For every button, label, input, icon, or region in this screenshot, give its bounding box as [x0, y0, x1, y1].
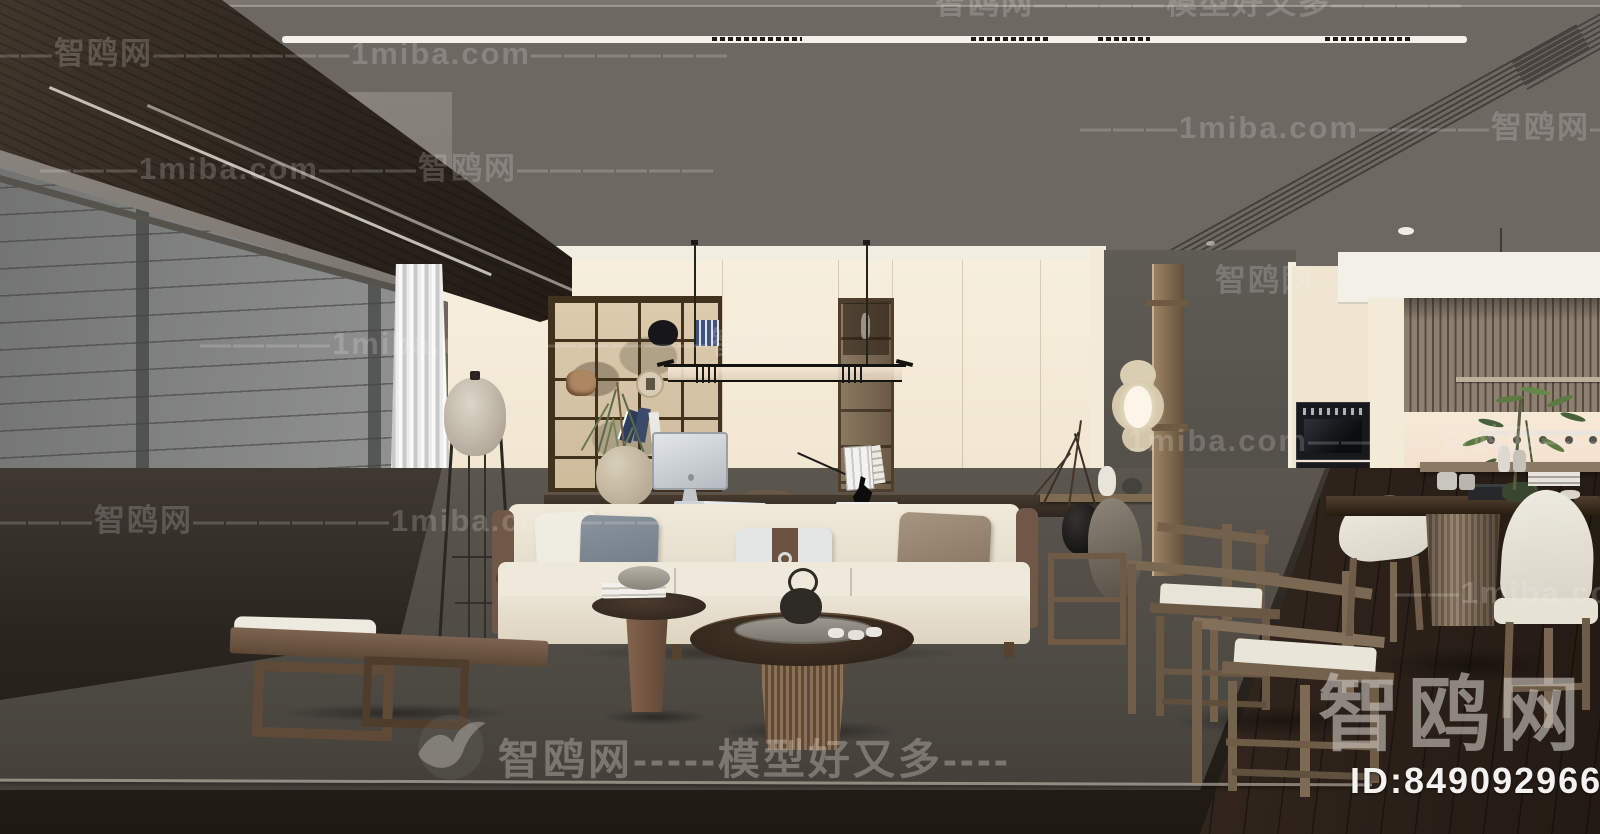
sofa-leg — [1004, 642, 1014, 658]
bookend-books — [843, 445, 874, 491]
quatrefoil-wall-lamp — [1112, 360, 1166, 454]
side-table-frame — [1048, 553, 1126, 645]
counter-jar — [1437, 472, 1457, 490]
rail-hook — [1589, 436, 1597, 444]
floor-lamp-shade — [444, 378, 506, 456]
counter-shelf — [1420, 462, 1600, 472]
light-strip-dark-segment — [1325, 37, 1410, 41]
counter-bottle — [1513, 450, 1526, 472]
bench-leg-frame — [362, 656, 469, 730]
dark-pebble-decor — [1122, 478, 1142, 494]
wall-rail — [1478, 431, 1600, 435]
plaque-mark — [646, 378, 655, 390]
watermark-row: ———1miba.com————智鸥网— — [1080, 102, 1600, 147]
pendant-ribs — [842, 366, 862, 383]
ceramic-vase — [596, 446, 654, 506]
chair-side-post — [1128, 564, 1136, 714]
tea-cup — [866, 627, 882, 637]
microwave-oven — [1296, 402, 1370, 460]
pole-crossbar — [1146, 300, 1188, 306]
table-column — [622, 612, 672, 712]
site-logo-watermark: 智鸥网 — [1318, 648, 1588, 767]
chair-top-rail — [1157, 522, 1269, 545]
chair-side-post — [1192, 621, 1202, 783]
ceiling-vent-band-corner — [1512, 0, 1600, 92]
kitchen-white-ceiling-band — [1338, 252, 1600, 304]
counter-bottle — [1498, 446, 1510, 472]
ceiling-edge-line — [0, 5, 1600, 7]
dining-chair-leg — [1390, 562, 1397, 642]
dining-chair-leg — [1411, 556, 1423, 630]
light-strip-dark-segment — [1098, 37, 1150, 41]
rail-hook — [1565, 436, 1573, 444]
dining-chair-leg — [1346, 558, 1357, 636]
floor-lamp-finial — [470, 371, 480, 380]
coral-ornament — [566, 370, 596, 396]
pendant-ribs — [696, 366, 716, 383]
pendant-cord — [694, 243, 696, 365]
decor-bowl — [618, 566, 670, 590]
pendant-cord — [866, 243, 868, 365]
model-id-text: ID:849092966 — [1350, 760, 1600, 802]
apple-logo — [688, 474, 694, 481]
side-table-stretcher — [1054, 597, 1120, 602]
teapot — [780, 588, 822, 624]
tea-cup — [828, 628, 844, 638]
cord-canopy — [691, 240, 698, 245]
counter-jar — [1459, 474, 1475, 490]
imac-computer — [652, 432, 730, 510]
black-vase — [648, 320, 678, 346]
imac-screen — [652, 432, 728, 490]
interior-render-scene: 智鸥网————模型好又多———————智鸥网——————1miba.com———… — [0, 0, 1600, 834]
bench-group — [228, 612, 558, 752]
light-strip-dark-segment — [971, 37, 1051, 41]
counter-books — [1528, 472, 1580, 486]
ceiling-spotlight — [1206, 241, 1215, 246]
white-vase-small — [1098, 466, 1116, 496]
coffee-table-large — [676, 600, 946, 760]
oven-window — [1304, 419, 1362, 453]
bamboo-rail — [1456, 377, 1600, 382]
table-fluted-base — [756, 658, 850, 750]
cord-canopy — [863, 240, 870, 245]
linear-pendant-lamp — [660, 360, 910, 388]
ceiling-spotlight — [1398, 227, 1414, 235]
ceiling-light-strip — [282, 36, 1467, 43]
lamp-glow — [1124, 386, 1152, 428]
blue-book-set — [695, 320, 719, 346]
control-strip — [1303, 408, 1363, 415]
dining-chair-back — [1499, 488, 1597, 611]
tea-cup — [848, 630, 864, 640]
light-strip-dark-segment — [712, 37, 802, 41]
